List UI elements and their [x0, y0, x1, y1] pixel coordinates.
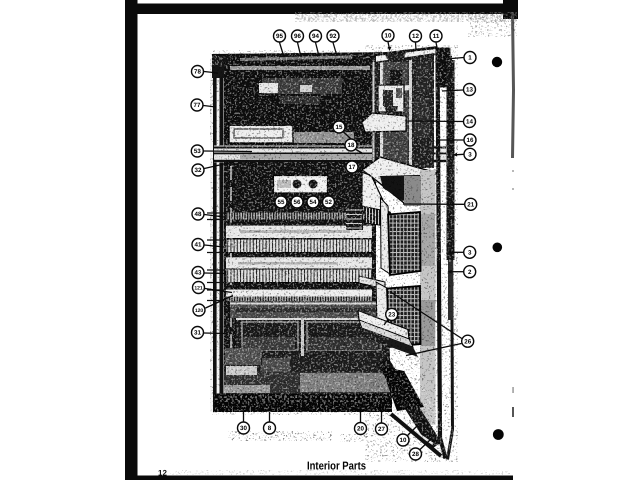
- svg-text:96: 96: [294, 33, 301, 40]
- svg-text:41: 41: [195, 242, 202, 249]
- svg-text:92: 92: [330, 33, 337, 40]
- svg-text:Interior Parts: Interior Parts: [307, 461, 366, 473]
- svg-text:55: 55: [278, 199, 285, 206]
- svg-text:3: 3: [468, 250, 472, 257]
- svg-text:15: 15: [336, 124, 343, 131]
- svg-text:10: 10: [400, 437, 407, 444]
- svg-text:56: 56: [294, 199, 301, 206]
- svg-text:21: 21: [467, 202, 474, 209]
- svg-text:8: 8: [268, 425, 272, 432]
- svg-text:52: 52: [325, 199, 332, 206]
- svg-text:28: 28: [412, 451, 419, 458]
- svg-text:54: 54: [310, 199, 317, 206]
- svg-text:121: 121: [194, 285, 203, 291]
- svg-text:13: 13: [466, 87, 473, 94]
- svg-text:20: 20: [357, 426, 364, 433]
- svg-text:31: 31: [194, 330, 201, 337]
- svg-text:43: 43: [195, 270, 202, 277]
- svg-text:95: 95: [276, 33, 283, 40]
- svg-text:30: 30: [240, 425, 247, 432]
- svg-text:23: 23: [388, 312, 395, 319]
- svg-text:53: 53: [194, 148, 201, 155]
- svg-text:48: 48: [195, 211, 202, 218]
- svg-text:120: 120: [195, 308, 204, 314]
- svg-text:12: 12: [412, 33, 419, 40]
- svg-text:10: 10: [385, 33, 392, 40]
- svg-text:1: 1: [468, 55, 472, 62]
- svg-text:17: 17: [349, 164, 356, 171]
- svg-text:77: 77: [194, 102, 201, 109]
- svg-text:26: 26: [464, 338, 471, 345]
- svg-text:11: 11: [433, 33, 440, 40]
- svg-text:27: 27: [378, 426, 385, 433]
- svg-text:94: 94: [312, 33, 319, 40]
- svg-text:16: 16: [467, 137, 474, 144]
- svg-text:14: 14: [466, 119, 473, 126]
- svg-text:3: 3: [468, 152, 472, 159]
- svg-text:2: 2: [468, 269, 472, 276]
- svg-text:18: 18: [348, 142, 355, 149]
- svg-text:32: 32: [195, 167, 202, 174]
- svg-text:12: 12: [158, 469, 167, 478]
- svg-text:78: 78: [194, 69, 201, 76]
